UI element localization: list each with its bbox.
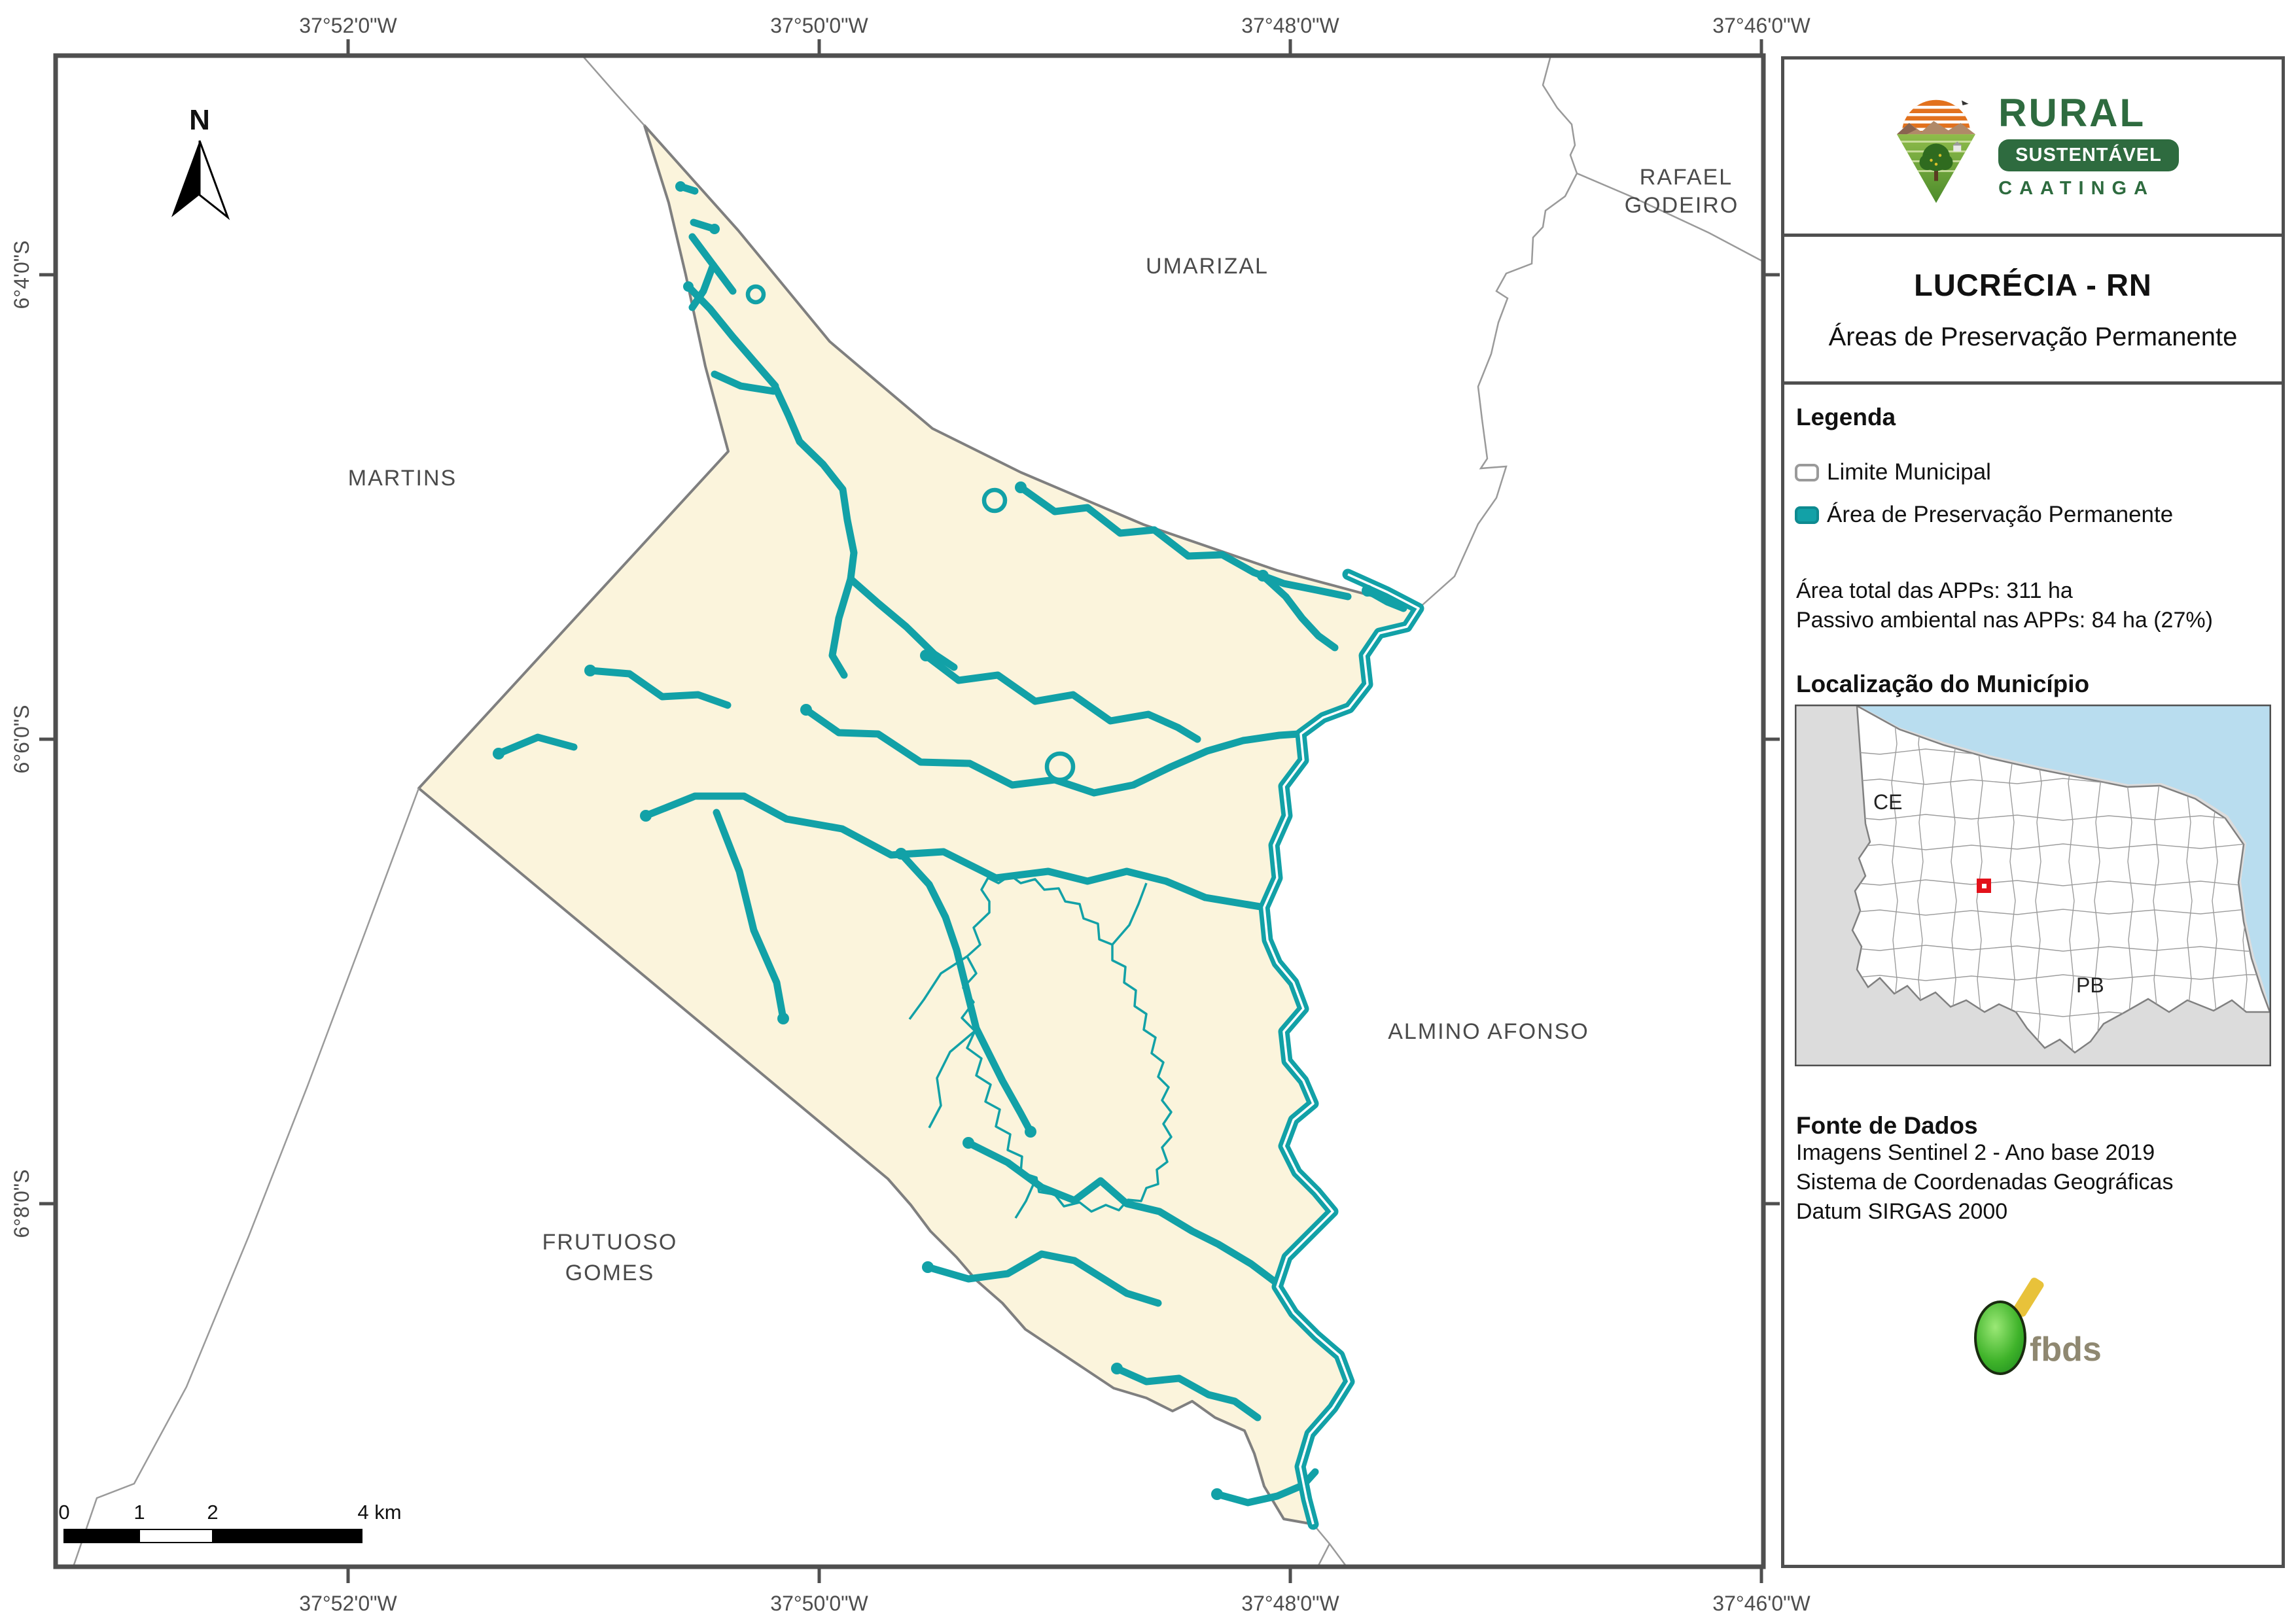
fonte-heading: Fonte de Dados xyxy=(1796,1112,1978,1140)
map-layers: RAFAEL GODEIRO UMARIZAL MARTINS ALMINO A… xyxy=(73,56,1763,1567)
fbds-logo-icon: fbds xyxy=(1961,1269,2105,1380)
label-umarizal: UMARIZAL xyxy=(1146,254,1269,279)
fonte-line: Sistema de Coordenadas Geográficas xyxy=(1796,1168,2173,1197)
north-arrow-label: N xyxy=(189,104,210,136)
scale-0: 0 xyxy=(58,1501,69,1524)
label-martins: MARTINS xyxy=(348,466,457,491)
program-logo-text: RURAL SUSTENTÁVEL CAATINGA xyxy=(1998,94,2179,200)
label-almino-afonso: ALMINO AFONSO xyxy=(1388,1019,1589,1044)
fonte-line: Datum SIRGAS 2000 xyxy=(1796,1197,2173,1227)
tick-left-2: 6°6'0"S xyxy=(10,705,33,774)
brand-sustentavel: SUSTENTÁVEL xyxy=(1998,139,2179,171)
brand-rural: RURAL xyxy=(1998,94,2146,133)
info-panel: RURAL SUSTENTÁVEL CAATINGA LUCRÉCIA - RN… xyxy=(1781,56,2285,1568)
label-ce: CE xyxy=(1873,790,1902,814)
label-rafael-godeiro-line2: GODEIRO xyxy=(1625,193,1739,218)
main-map-canvas: RAFAEL GODEIRO UMARIZAL MARTINS ALMINO A… xyxy=(0,0,1826,1623)
brand-caatinga: CAATINGA xyxy=(1998,178,2155,200)
label-rafael-godeiro-line1: RAFAEL xyxy=(1640,165,1733,190)
rural-sustentavel-emblem-icon xyxy=(1887,81,1985,212)
scale-bar: 0 1 2 4 km xyxy=(58,1501,401,1543)
north-arrow-left-half xyxy=(171,141,200,217)
state-locator-map: CE PB xyxy=(1795,705,2271,1066)
stat-total-apps: Área total das APPs: 311 ha xyxy=(1796,576,2213,606)
red-marker-center xyxy=(1982,884,1987,888)
page-title: LUCRÉCIA - RN xyxy=(1914,267,2152,303)
scale-4km: 4 km xyxy=(357,1501,401,1524)
label-frutuoso-gomes-line2: GOMES xyxy=(565,1261,655,1285)
stat-passivo-apps: Passivo ambiental nas APPs: 84 ha (27%) xyxy=(1796,606,2213,635)
app-statistics: Área total das APPs: 311 ha Passivo ambi… xyxy=(1796,576,2213,635)
tick-top-2: 37°50'0"W xyxy=(770,14,868,37)
limite-municipal-swatch-icon xyxy=(1795,464,1819,481)
tick-bottom-1: 37°52'0"W xyxy=(299,1592,397,1615)
municipality-polygon xyxy=(419,126,1419,1524)
tick-top-1: 37°52'0"W xyxy=(299,14,397,37)
tick-left-3: 6°8'0"S xyxy=(10,1170,33,1238)
tick-left-1: 6°4'0"S xyxy=(10,241,33,309)
tick-bottom-3: 37°48'0"W xyxy=(1241,1592,1339,1615)
panel-content: Legenda Limite Municipal Área de Preserv… xyxy=(1784,385,2282,1565)
page-subtitle: Áreas de Preservação Permanente xyxy=(1829,323,2238,352)
location-heading: Localização do Município xyxy=(1796,671,2089,698)
scale-2: 2 xyxy=(207,1501,218,1524)
tick-top-3: 37°48'0"W xyxy=(1241,14,1339,37)
tick-bottom-4: 37°46'0"W xyxy=(1712,1592,1810,1615)
north-arrow: N xyxy=(171,104,228,217)
title-box: LUCRÉCIA - RN Áreas de Preservação Perma… xyxy=(1784,237,2282,385)
legend-item-limite-municipal: Limite Municipal xyxy=(1795,459,1991,485)
legend-item-app: Área de Preservação Permanente xyxy=(1795,502,2173,528)
legend-item-label: Área de Preservação Permanente xyxy=(1827,502,2173,528)
scale-1: 1 xyxy=(133,1501,145,1524)
label-pb: PB xyxy=(2076,973,2104,997)
north-arrow-right-half xyxy=(200,141,228,217)
fbds-logo: fbds xyxy=(1961,1269,2105,1384)
tick-top-4: 37°46'0"W xyxy=(1712,14,1810,37)
map-report-page: RAFAEL GODEIRO UMARIZAL MARTINS ALMINO A… xyxy=(0,0,2296,1623)
legend-item-label: Limite Municipal xyxy=(1827,459,1991,485)
tick-bottom-2: 37°50'0"W xyxy=(770,1592,868,1615)
app-swatch-icon xyxy=(1795,506,1819,524)
fonte-lines: Imagens Sentinel 2 - Ano base 2019 Siste… xyxy=(1796,1138,2173,1227)
fonte-line: Imagens Sentinel 2 - Ano base 2019 xyxy=(1796,1138,2173,1168)
legend-heading: Legenda xyxy=(1796,404,1896,431)
label-frutuoso-gomes-line1: FRUTUOSO xyxy=(542,1230,678,1255)
program-logo-box: RURAL SUSTENTÁVEL CAATINGA xyxy=(1784,60,2282,237)
fbds-wordmark: fbds xyxy=(2030,1331,2102,1369)
